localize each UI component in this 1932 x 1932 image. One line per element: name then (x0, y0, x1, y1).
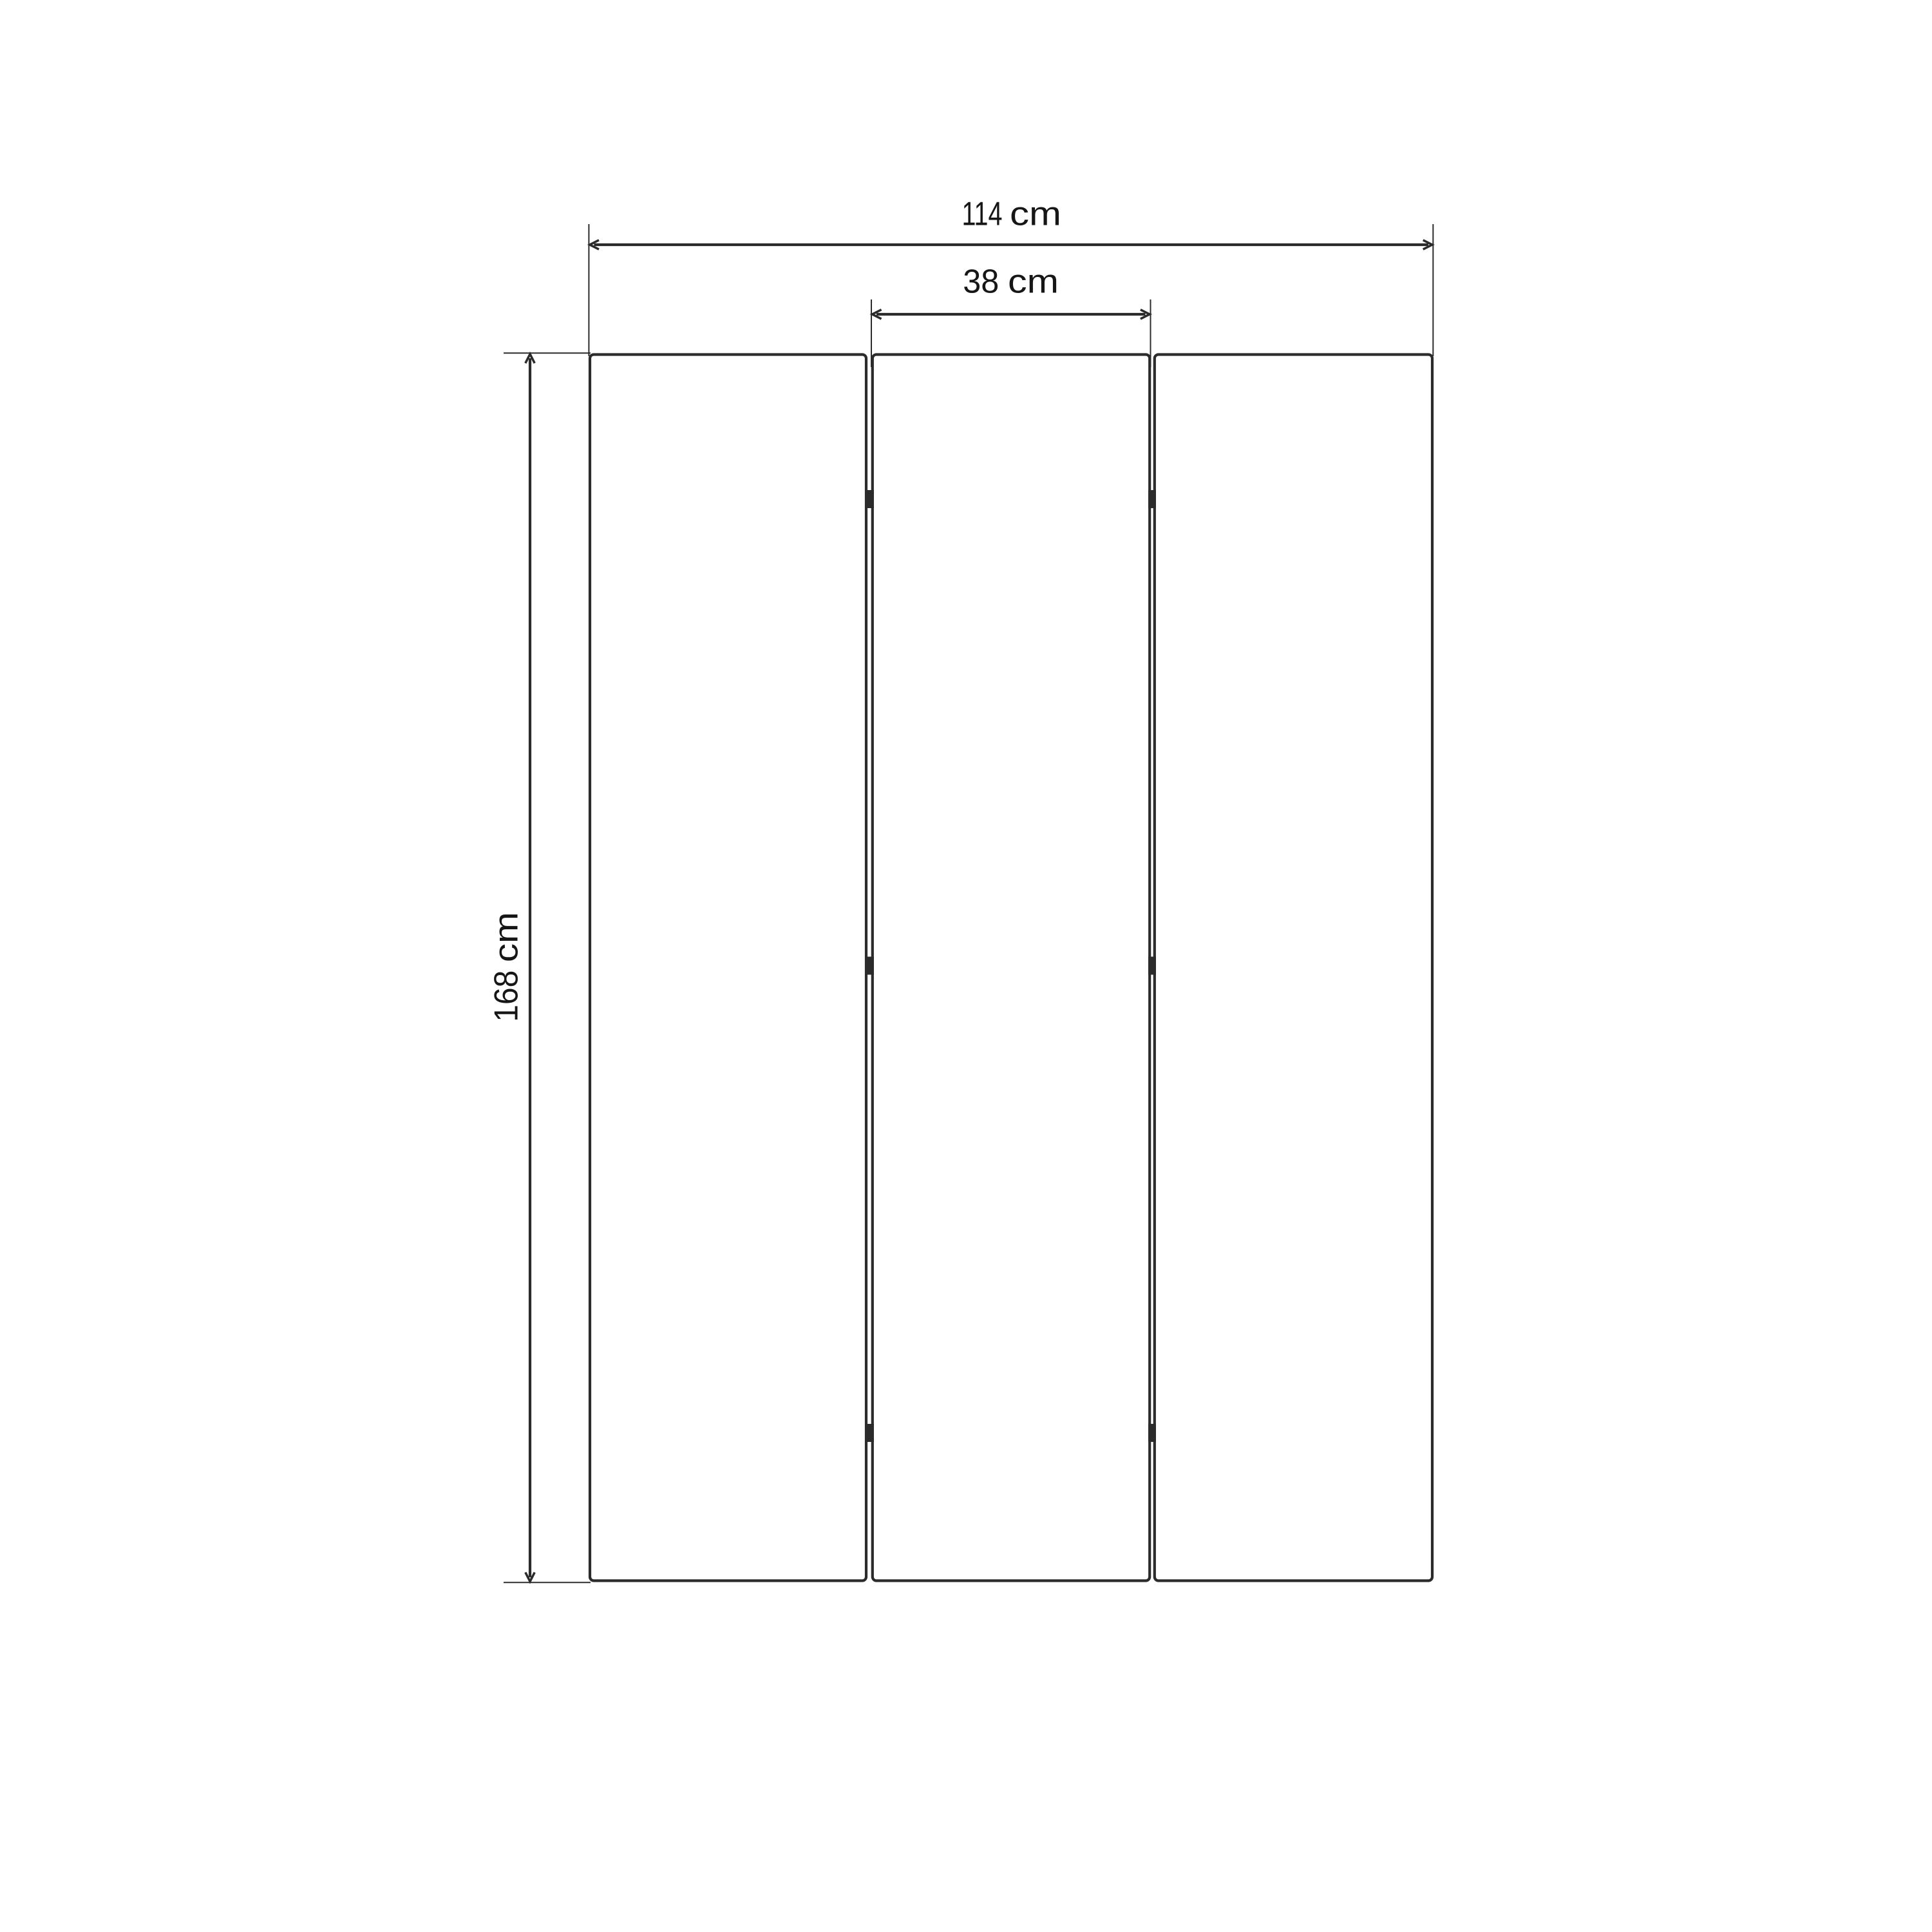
svg-text:168: 168 (488, 971, 525, 1022)
svg-text:114: 114 (962, 196, 1003, 233)
svg-text:cm: cm (1008, 263, 1059, 301)
svg-text:38: 38 (963, 263, 999, 301)
svg-text:cm: cm (1010, 196, 1061, 233)
svg-text:cm: cm (488, 912, 525, 962)
